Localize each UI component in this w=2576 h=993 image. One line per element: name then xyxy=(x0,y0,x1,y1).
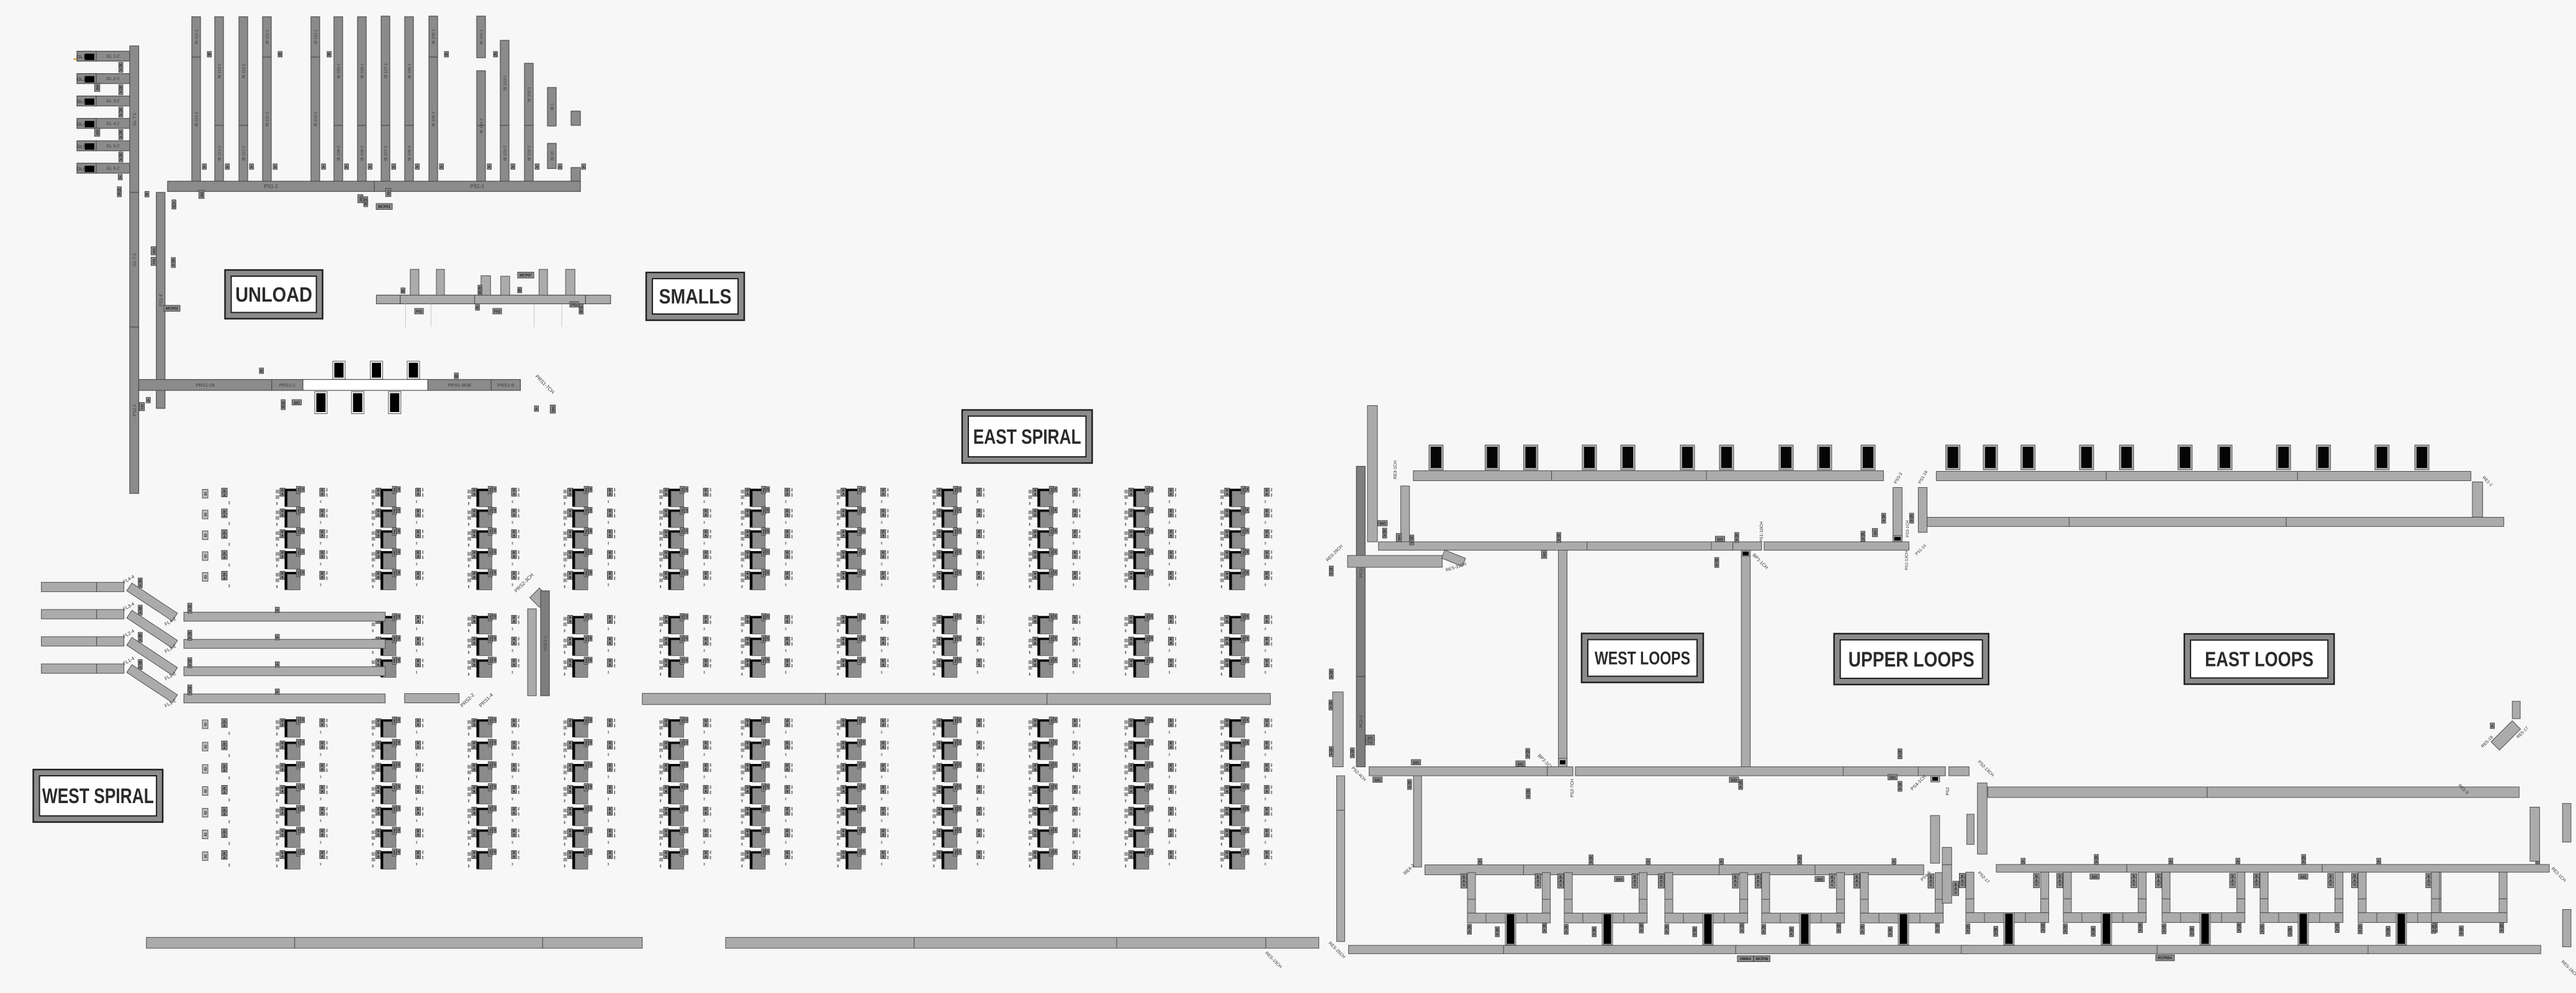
svg-text:R: R xyxy=(445,53,448,57)
svg-text:A: A xyxy=(1351,754,1354,758)
svg-text:A: A xyxy=(2500,929,2503,933)
svg-text:A: A xyxy=(203,166,206,169)
svg-text:PS2-7CH: PS2-7CH xyxy=(1570,779,1575,798)
svg-text:A: A xyxy=(2460,932,2463,936)
svg-text:G: G xyxy=(1634,884,1636,887)
svg-text:GL4: GL4 xyxy=(77,121,86,127)
svg-text:PRS1-18: PRS1-18 xyxy=(196,382,214,388)
svg-text:A: A xyxy=(2095,861,2098,865)
svg-text:A: A xyxy=(223,856,226,860)
svg-text:IB 109-2: IB 109-2 xyxy=(336,145,341,161)
svg-text:R: R xyxy=(494,53,497,57)
svg-text:SIO: SIO xyxy=(1517,763,1524,766)
svg-text:A: A xyxy=(1736,539,1739,542)
svg-text:A: A xyxy=(1739,786,1742,789)
svg-text:A: A xyxy=(1911,519,1914,523)
svg-text:A: A xyxy=(223,769,226,773)
svg-text:A: A xyxy=(1893,860,1896,864)
svg-text:GL 1-2: GL 1-2 xyxy=(106,55,119,59)
svg-text:WEST LOOPS: WEST LOOPS xyxy=(1595,649,1690,669)
svg-text:IB 113-2: IB 113-2 xyxy=(217,146,222,161)
svg-text:SIO: SIO xyxy=(1889,776,1896,780)
svg-text:A: A xyxy=(276,609,279,613)
svg-text:A: A xyxy=(322,166,325,169)
svg-text:GL 2-2: GL 2-2 xyxy=(106,77,119,81)
svg-text:SIO: SIO xyxy=(1816,878,1823,882)
svg-text:G: G xyxy=(2428,883,2430,887)
svg-text:A: A xyxy=(2191,933,2194,937)
svg-text:IB 103-1: IB 103-1 xyxy=(503,75,507,91)
svg-text:A: A xyxy=(223,791,226,795)
svg-text:R: R xyxy=(364,203,367,207)
svg-text:IB 110-2: IB 110-2 xyxy=(313,112,318,127)
svg-text:A: A xyxy=(1790,933,1793,937)
svg-text:A: A xyxy=(2289,933,2292,937)
svg-text:SIO: SIO xyxy=(1374,779,1381,783)
svg-text:PS1-1: PS1-1 xyxy=(471,184,485,189)
svg-text:B: B xyxy=(518,289,521,293)
svg-text:A: A xyxy=(1994,933,1997,937)
svg-text:SIO: SIO xyxy=(1543,551,1547,557)
svg-text:A: A xyxy=(1647,860,1650,864)
svg-text:A: A xyxy=(147,399,150,403)
svg-text:A: A xyxy=(223,556,226,560)
svg-text:IB 106-1: IB 106-1 xyxy=(407,63,412,79)
svg-text:A: A xyxy=(2302,861,2305,865)
svg-text:PS1-10CH: PS1-10CH xyxy=(1760,521,1764,542)
svg-text:A: A xyxy=(1966,930,1970,934)
svg-text:A: A xyxy=(1543,929,1546,933)
svg-text:IB 105-1: IB 105-1 xyxy=(431,29,436,44)
svg-text:A: A xyxy=(1410,541,1413,545)
svg-text:A: A xyxy=(392,166,395,169)
svg-text:A: A xyxy=(1882,519,1885,523)
svg-text:R: R xyxy=(260,370,263,374)
svg-text:FIO: FIO xyxy=(571,303,577,307)
svg-text:A: A xyxy=(120,158,123,162)
svg-text:IB 110-1: IB 110-1 xyxy=(313,29,318,44)
svg-text:GL 7-1: GL 7-1 xyxy=(133,112,137,125)
svg-text:FIO: FIO xyxy=(1367,742,1374,745)
svg-text:PS3-1CH: PS3-1CH xyxy=(1906,520,1910,537)
svg-text:MCP06: MCP06 xyxy=(1755,958,1768,961)
svg-text:B: B xyxy=(455,375,458,379)
svg-text:A: A xyxy=(2169,860,2173,864)
svg-text:GL 4-2: GL 4-2 xyxy=(106,122,119,126)
svg-text:G: G xyxy=(1930,884,1932,887)
svg-text:A: A xyxy=(1330,675,1333,679)
svg-text:A: A xyxy=(511,166,515,169)
svg-text:IB 111-1: IB 111-1 xyxy=(265,29,269,44)
svg-text:A: A xyxy=(2092,933,2095,937)
svg-text:G: G xyxy=(1757,884,1759,887)
svg-text:A: A xyxy=(440,166,443,169)
svg-text:R: R xyxy=(476,307,479,310)
svg-text:PS1-2: PS1-2 xyxy=(264,184,278,189)
svg-text:A: A xyxy=(369,166,372,169)
svg-text:A: A xyxy=(120,91,123,95)
svg-text:A: A xyxy=(345,166,348,169)
svg-text:A: A xyxy=(223,747,226,750)
svg-text:G: G xyxy=(1831,884,1834,887)
svg-text:GL 7-2: GL 7-2 xyxy=(133,253,137,266)
svg-text:A: A xyxy=(119,176,122,180)
svg-text:A: A xyxy=(582,166,585,169)
svg-text:G: G xyxy=(2035,883,2038,887)
svg-text:A: A xyxy=(1479,860,1482,864)
svg-text:PS2: PS2 xyxy=(1946,787,1950,795)
svg-text:A: A xyxy=(172,264,175,267)
svg-text:GL 3-2: GL 3-2 xyxy=(106,99,119,104)
svg-text:IB 102-1: IB 102-1 xyxy=(527,86,531,102)
svg-text:SIO: SIO xyxy=(294,402,300,405)
svg-text:A: A xyxy=(2163,930,2166,934)
svg-text:A: A xyxy=(1384,534,1387,538)
svg-text:A: A xyxy=(120,136,123,140)
svg-text:A: A xyxy=(2387,933,2390,937)
svg-text:IB 104-1: IB 104-1 xyxy=(479,29,484,45)
svg-text:IB 104-2: IB 104-2 xyxy=(479,118,484,133)
svg-text:SIO: SIO xyxy=(387,189,391,195)
svg-text:IB 109-1: IB 109-1 xyxy=(336,63,341,79)
svg-text:A: A xyxy=(559,166,562,169)
svg-text:A: A xyxy=(2238,929,2241,933)
svg-text:HMI04: HMI04 xyxy=(1740,958,1751,961)
svg-text:A: A xyxy=(1526,755,1529,758)
svg-text:A: A xyxy=(1889,933,1892,937)
svg-text:A: A xyxy=(1557,539,1560,542)
svg-text:FIO: FIO xyxy=(153,258,156,264)
svg-text:SIO: SIO xyxy=(1717,538,1724,542)
svg-text:SIO: SIO xyxy=(1731,779,1737,783)
svg-text:SIO: SIO xyxy=(200,191,204,197)
svg-text:A: A xyxy=(2139,929,2142,933)
svg-text:WEST SPIRAL: WEST SPIRAL xyxy=(42,784,154,808)
svg-text:IB 113-1: IB 113-1 xyxy=(217,63,222,78)
svg-text:A: A xyxy=(2236,860,2240,864)
svg-text:A: A xyxy=(276,691,279,694)
svg-text:FIO: FIO xyxy=(416,310,422,314)
svg-text:G: G xyxy=(1559,884,1562,887)
svg-text:G: G xyxy=(1961,883,1963,887)
svg-text:IB 112-1: IB 112-1 xyxy=(241,63,246,78)
svg-text:SIO: SIO xyxy=(1413,762,1420,765)
svg-text:A: A xyxy=(1330,753,1333,757)
svg-text:A: A xyxy=(223,813,226,817)
svg-text:A: A xyxy=(139,611,142,615)
svg-text:G: G xyxy=(1855,884,1858,887)
svg-text:A: A xyxy=(1862,537,1865,541)
svg-text:A: A xyxy=(189,691,192,695)
svg-text:GL6: GL6 xyxy=(77,166,86,172)
svg-text:PS2-1: PS2-1 xyxy=(133,404,137,416)
svg-text:G: G xyxy=(1955,891,1957,895)
svg-text:A: A xyxy=(1590,861,1593,865)
svg-text:A: A xyxy=(276,636,279,640)
svg-text:G: G xyxy=(1734,884,1737,887)
svg-text:R: R xyxy=(279,53,282,57)
svg-text:G: G xyxy=(1537,884,1539,887)
svg-text:G: G xyxy=(2157,883,2159,887)
svg-text:IB 114-1: IB 114-1 xyxy=(194,29,199,44)
svg-text:GL1: GL1 xyxy=(77,54,86,60)
svg-text:A: A xyxy=(1861,930,1864,934)
svg-text:A: A xyxy=(250,166,253,169)
svg-text:A: A xyxy=(139,666,142,670)
svg-text:SIO: SIO xyxy=(1874,529,1878,536)
svg-text:R: R xyxy=(208,53,211,57)
svg-text:A: A xyxy=(189,664,192,668)
svg-text:G: G xyxy=(2231,883,2234,887)
svg-text:SIO: SIO xyxy=(96,84,100,90)
svg-text:A: A xyxy=(1496,933,1499,937)
svg-text:G: G xyxy=(2058,883,2061,887)
svg-text:EAST LOOPS: EAST LOOPS xyxy=(2205,647,2313,670)
svg-text:A: A xyxy=(189,609,192,613)
svg-text:R: R xyxy=(118,193,121,197)
svg-text:PS1-4: PS1-4 xyxy=(159,294,163,307)
svg-text:A: A xyxy=(223,536,226,539)
svg-text:R: R xyxy=(146,193,149,197)
svg-text:G: G xyxy=(2353,883,2356,887)
svg-text:A: A xyxy=(416,166,419,169)
svg-text:MCP07: MCP07 xyxy=(520,274,533,277)
svg-text:A: A xyxy=(120,69,123,73)
svg-text:R: R xyxy=(282,406,285,410)
svg-text:SIO: SIO xyxy=(153,248,156,254)
svg-text:A: A xyxy=(1899,788,1902,791)
svg-text:GL 6-2: GL 6-2 xyxy=(106,167,119,171)
svg-text:G: G xyxy=(2330,883,2332,887)
svg-text:R: R xyxy=(328,53,331,57)
svg-text:SIO: SIO xyxy=(1367,737,1374,740)
svg-text:MCP02: MCP02 xyxy=(166,307,179,311)
svg-text:UPPER LOOPS: UPPER LOOPS xyxy=(1849,648,1975,672)
svg-text:G: G xyxy=(2255,883,2258,887)
svg-text:A: A xyxy=(223,724,226,728)
svg-text:IB 108-1: IB 108-1 xyxy=(360,63,364,79)
svg-text:A: A xyxy=(1565,930,1568,934)
svg-text:IB 106-2: IB 106-2 xyxy=(407,145,412,161)
svg-text:A: A xyxy=(1798,861,1801,865)
svg-text:A: A xyxy=(1762,930,1765,934)
svg-text:A: A xyxy=(2432,930,2435,933)
svg-text:GL5: GL5 xyxy=(77,143,86,149)
svg-text:A: A xyxy=(139,584,142,588)
svg-text:A: A xyxy=(2336,929,2339,933)
svg-text:A: A xyxy=(2491,725,2494,729)
svg-text:A: A xyxy=(488,166,491,169)
svg-text:A: A xyxy=(173,205,176,209)
svg-text:A: A xyxy=(2261,930,2264,934)
svg-text:A: A xyxy=(2359,930,2362,934)
svg-text:A: A xyxy=(1716,564,1719,567)
svg-text:B: B xyxy=(402,290,405,294)
svg-text:G: G xyxy=(1462,884,1465,887)
svg-text:A: A xyxy=(2064,930,2067,934)
svg-text:A: A xyxy=(535,408,538,411)
svg-text:A: A xyxy=(139,639,142,642)
svg-text:A: A xyxy=(1899,755,1902,759)
svg-text:IB 103-2: IB 103-2 xyxy=(503,145,507,161)
svg-text:IB 10: IB 10 xyxy=(550,151,554,161)
svg-text:DOC1-C: DOC1-C xyxy=(543,636,547,651)
svg-text:G: G xyxy=(2133,883,2135,887)
svg-text:RCP06A: RCP06A xyxy=(2158,956,2173,960)
svg-text:A: A xyxy=(189,637,192,640)
svg-text:GL 5-2: GL 5-2 xyxy=(106,144,119,148)
svg-text:IB 114-2: IB 114-2 xyxy=(194,112,199,127)
svg-text:IB 107-2: IB 107-2 xyxy=(384,145,388,161)
svg-text:A: A xyxy=(1330,572,1333,576)
svg-text:A: A xyxy=(1741,929,1744,933)
svg-text:SMALLS: SMALLS xyxy=(659,285,732,308)
svg-text:A: A xyxy=(1640,929,1643,933)
svg-text:A: A xyxy=(1837,929,1840,933)
svg-text:GL2: GL2 xyxy=(77,76,86,82)
svg-text:SIO: SIO xyxy=(96,128,100,135)
svg-text:PC2-3: PC2-3 xyxy=(1359,716,1364,728)
svg-text:A: A xyxy=(223,494,226,498)
svg-text:IB 111-2: IB 111-2 xyxy=(265,112,269,127)
svg-text:A: A xyxy=(1936,929,1939,933)
svg-text:SIO: SIO xyxy=(1379,523,1386,526)
svg-text:IB 107-1: IB 107-1 xyxy=(384,63,388,78)
svg-text:SIO: SIO xyxy=(1616,878,1623,882)
svg-text:SIO: SIO xyxy=(359,195,363,202)
svg-text:FIO: FIO xyxy=(494,310,500,314)
svg-text:SIO: SIO xyxy=(2091,876,2098,879)
svg-text:A: A xyxy=(276,663,279,667)
svg-text:A: A xyxy=(223,835,226,838)
svg-text:A: A xyxy=(1408,786,1412,789)
svg-text:A: A xyxy=(1693,933,1696,937)
svg-text:A: A xyxy=(1330,706,1333,710)
svg-text:PRS1-1: PRS1-1 xyxy=(279,382,295,388)
svg-text:PS1-13CH: PS1-13CH xyxy=(1905,550,1909,570)
svg-text:A: A xyxy=(536,166,539,169)
svg-text:A: A xyxy=(223,514,226,518)
svg-text:PRS1-9GB: PRS1-9GB xyxy=(448,382,471,388)
svg-text:MCP01: MCP01 xyxy=(378,205,391,209)
svg-text:A: A xyxy=(1720,860,1723,864)
svg-text:SIO: SIO xyxy=(2300,876,2307,879)
svg-text:A: A xyxy=(1593,933,1596,937)
svg-text:RE3-1CH: RE3-1CH xyxy=(1394,461,1398,479)
svg-text:IB 102-2: IB 102-2 xyxy=(527,145,531,161)
svg-text:IB 108-2: IB 108-2 xyxy=(360,145,364,161)
svg-text:G: G xyxy=(1660,884,1662,887)
svg-text:A: A xyxy=(1665,930,1669,934)
svg-text:IB 1: IB 1 xyxy=(550,103,554,110)
svg-text:B: B xyxy=(580,310,583,314)
svg-text:IB 112-2: IB 112-2 xyxy=(241,146,246,161)
svg-text:A: A xyxy=(173,202,176,205)
svg-text:A: A xyxy=(226,166,229,169)
svg-text:B: B xyxy=(479,292,482,295)
svg-text:A: A xyxy=(2022,860,2025,864)
svg-text:FIO: FIO xyxy=(141,403,145,410)
svg-text:A: A xyxy=(1468,930,1471,934)
svg-text:A: A xyxy=(2042,929,2045,933)
svg-text:A: A xyxy=(120,114,123,117)
svg-text:IB 105-2: IB 105-2 xyxy=(431,111,436,127)
svg-text:SIO: SIO xyxy=(552,406,556,412)
svg-text:A: A xyxy=(2377,860,2380,864)
svg-text:PRS1-9: PRS1-9 xyxy=(498,382,514,388)
svg-text:A: A xyxy=(274,166,277,169)
svg-text:GL3: GL3 xyxy=(77,99,86,104)
svg-text:EAST SPIRAL: EAST SPIRAL xyxy=(973,425,1081,448)
svg-text:SIO: SIO xyxy=(1398,534,1402,541)
svg-text:A: A xyxy=(223,577,226,581)
svg-text:UNLOAD: UNLOAD xyxy=(235,283,312,306)
